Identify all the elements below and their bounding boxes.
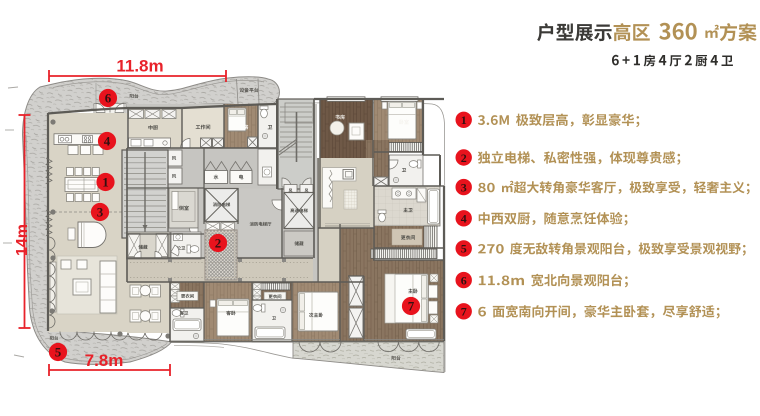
svg-text:6: 6 bbox=[105, 91, 112, 106]
svg-text:6: 6 bbox=[461, 273, 467, 287]
svg-text:2: 2 bbox=[461, 151, 467, 165]
svg-text:1: 1 bbox=[461, 113, 467, 127]
svg-text:4: 4 bbox=[104, 134, 111, 149]
svg-text:7: 7 bbox=[461, 305, 467, 319]
svg-text:2: 2 bbox=[215, 236, 222, 251]
svg-text:11.8m: 11.8m bbox=[116, 57, 163, 76]
svg-text:5: 5 bbox=[461, 242, 467, 256]
svg-text:7: 7 bbox=[408, 299, 415, 314]
svg-text:7.8m: 7.8m bbox=[85, 351, 124, 370]
svg-text:3: 3 bbox=[97, 205, 104, 220]
svg-text:3: 3 bbox=[461, 180, 467, 194]
svg-text:4: 4 bbox=[461, 212, 467, 226]
svg-text:5: 5 bbox=[55, 345, 62, 360]
svg-text:1: 1 bbox=[102, 175, 109, 190]
svg-text:14m: 14m bbox=[14, 224, 31, 256]
